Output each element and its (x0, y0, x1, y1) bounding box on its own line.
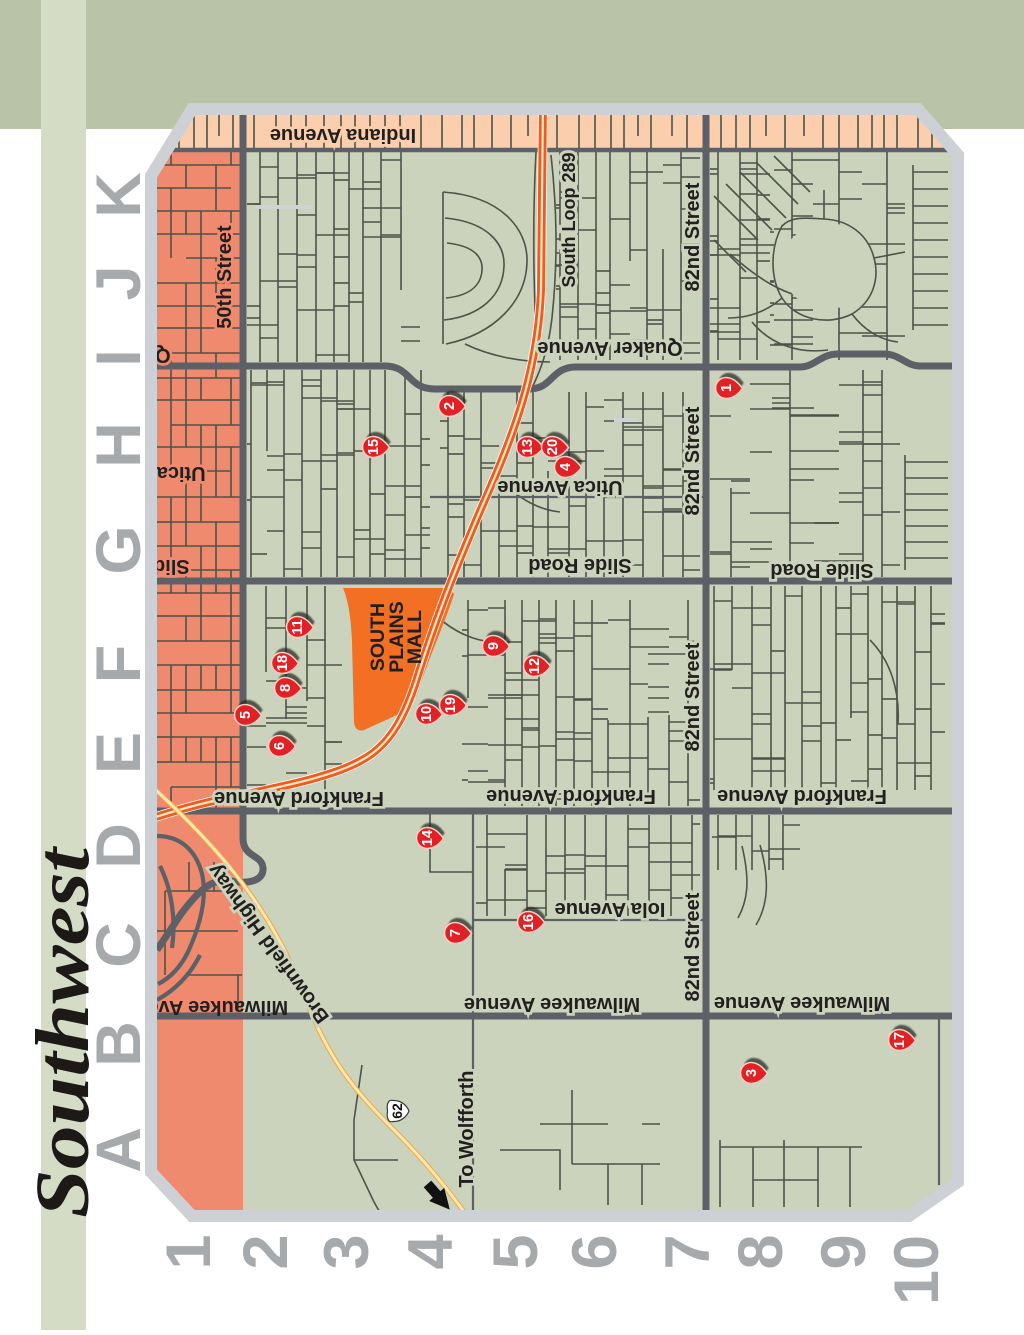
svg-text:7: 7 (448, 929, 464, 937)
svg-text:Quaker Avenue: Quaker Avenue (537, 337, 682, 359)
svg-text:4: 4 (396, 1234, 466, 1269)
svg-text:13: 13 (520, 439, 536, 455)
svg-text:8: 8 (278, 684, 294, 692)
svg-text:50th Street: 50th Street (214, 225, 236, 329)
svg-text:I: I (84, 349, 154, 367)
svg-text:82nd Street: 82nd Street (682, 406, 704, 515)
svg-text:Indiana Avenue: Indiana Avenue (270, 124, 416, 146)
svg-text:19: 19 (443, 697, 459, 713)
svg-text:Frankford Avenue: Frankford Avenue (214, 787, 384, 809)
svg-text:K: K (84, 172, 154, 218)
svg-text:Slide Road: Slide Road (528, 554, 631, 576)
svg-text:1: 1 (719, 384, 735, 392)
svg-text:5: 5 (238, 711, 254, 719)
svg-text:10: 10 (419, 706, 435, 722)
svg-text:E: E (84, 732, 154, 774)
svg-text:7: 7 (653, 1234, 723, 1269)
svg-text:82nd Street: 82nd Street (682, 182, 704, 291)
svg-text:MALL: MALL (404, 610, 426, 664)
svg-text:62: 62 (389, 1103, 405, 1119)
svg-text:A: A (84, 1127, 154, 1173)
svg-text:D: D (84, 823, 154, 869)
svg-text:16: 16 (521, 914, 537, 930)
svg-text:Frankford Avenue: Frankford Avenue (486, 785, 656, 807)
svg-text:12: 12 (527, 658, 543, 674)
svg-text:South Loop 289: South Loop 289 (559, 153, 579, 288)
svg-text:Milwaukee Avenue: Milwaukee Avenue (464, 993, 640, 1015)
svg-text:F: F (84, 645, 154, 683)
svg-text:Frankford Avenue: Frankford Avenue (717, 785, 887, 807)
svg-text:15: 15 (366, 439, 382, 455)
svg-text:82nd Street: 82nd Street (682, 892, 704, 1001)
svg-text:3: 3 (744, 1069, 760, 1077)
svg-text:B: B (84, 1021, 154, 1067)
svg-text:G: G (84, 525, 154, 574)
svg-text:2: 2 (442, 402, 458, 410)
svg-text:82nd Street: 82nd Street (682, 642, 704, 751)
svg-text:Utica Avenue: Utica Avenue (497, 476, 622, 498)
svg-text:8: 8 (726, 1234, 796, 1269)
svg-text:5: 5 (481, 1234, 551, 1269)
svg-text:18: 18 (275, 655, 291, 671)
svg-text:11: 11 (290, 619, 306, 634)
svg-text:1: 1 (154, 1234, 224, 1269)
svg-text:10: 10 (882, 1235, 952, 1305)
svg-text:Slide Road: Slide Road (770, 559, 873, 581)
svg-text:Milwaukee Avenue: Milwaukee Avenue (714, 992, 890, 1014)
svg-text:9: 9 (486, 642, 502, 650)
svg-text:C: C (84, 922, 154, 968)
svg-text:6: 6 (272, 742, 288, 750)
svg-text:J: J (84, 265, 154, 300)
svg-text:17: 17 (892, 1032, 908, 1048)
svg-text:14: 14 (420, 830, 436, 846)
svg-text:To Wolfforth: To Wolfforth (456, 1071, 478, 1188)
svg-text:3: 3 (312, 1234, 382, 1269)
svg-text:H: H (84, 422, 154, 468)
svg-text:2: 2 (231, 1234, 301, 1269)
svg-text:Iola Avenue: Iola Avenue (555, 898, 666, 920)
svg-text:4: 4 (558, 463, 574, 471)
svg-text:6: 6 (560, 1234, 630, 1269)
svg-text:20: 20 (545, 439, 561, 455)
svg-text:9: 9 (809, 1234, 879, 1269)
